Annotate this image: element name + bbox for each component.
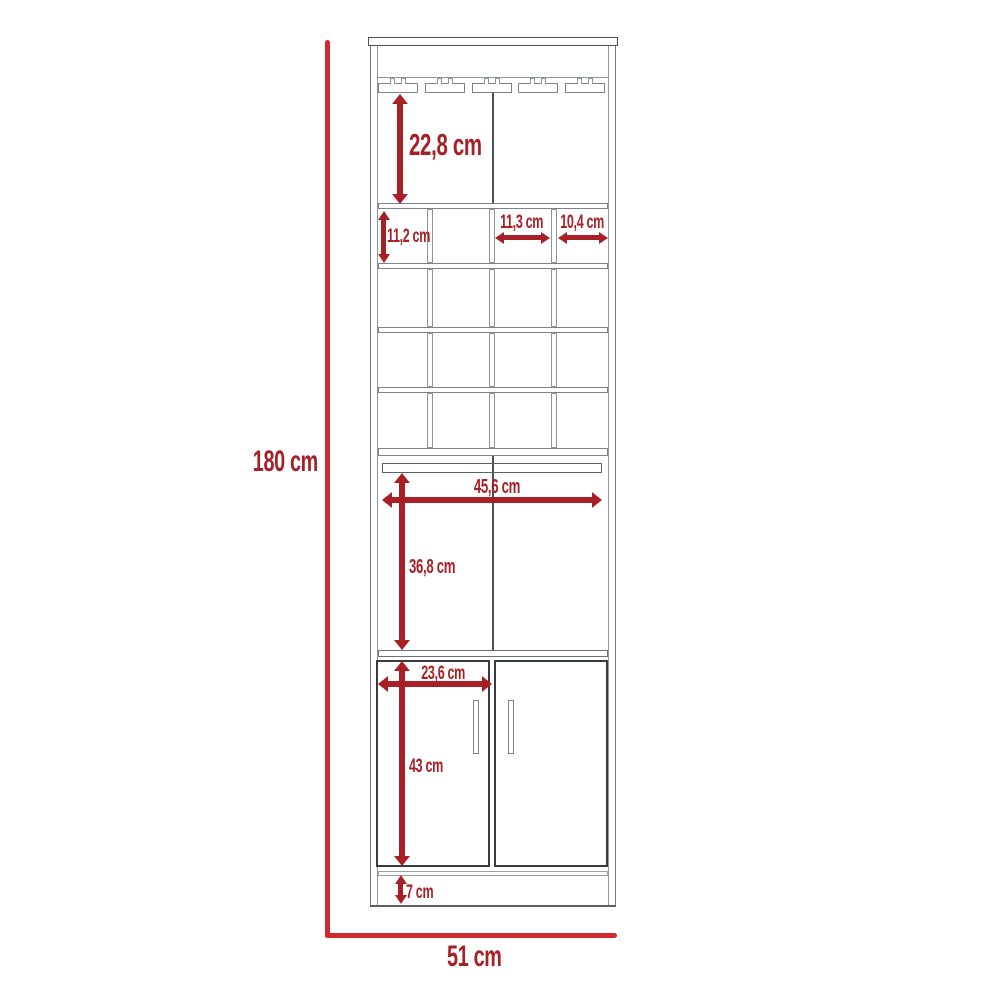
rail-tab (437, 78, 442, 84)
shelf-width-label: 45,6 cm (447, 477, 547, 497)
stemware-rail (518, 83, 558, 93)
wine-rack-divider (427, 393, 433, 448)
base-trim-line (378, 871, 608, 876)
rail-tab (541, 78, 546, 84)
rail-tab (588, 78, 593, 84)
rail-tab (448, 78, 453, 84)
wine-rack-divider (551, 393, 557, 448)
cabinet-bottom-edge (370, 905, 616, 908)
rail-tab (530, 78, 535, 84)
middle-shelf (378, 650, 608, 657)
base-height-arrow (398, 884, 403, 895)
rail-tab (390, 78, 395, 84)
stemware-rack-mount-line (378, 77, 608, 79)
overall-width-label: 51 cm (424, 942, 524, 972)
wine-rack-divider (551, 333, 557, 387)
cubby-height-arrow (381, 220, 386, 254)
middle-height-label: 36,8 cm (409, 557, 479, 577)
door-height-arrow (399, 671, 405, 856)
wine-rack-divider (427, 269, 433, 327)
rail-tab (495, 78, 500, 84)
stemware-rail (378, 83, 418, 93)
wine-rack-divider (427, 333, 433, 387)
cubby-outer-width-arrow (567, 235, 599, 240)
door-height-label: 43 cm (409, 757, 460, 776)
dimension-diagram: 180 cm 51 cm 22,8 cm 11,2 cm 11,3 cm 10,… (0, 0, 1000, 1000)
overall-height-dimension-line (325, 40, 330, 938)
stemware-rail (425, 83, 465, 93)
glass-height-label: 22,8 cm (409, 129, 519, 160)
door-width-label: 23,6 cm (393, 664, 493, 683)
stemware-rail (472, 83, 512, 93)
rail-tab (577, 78, 582, 84)
wine-rack-divider (489, 269, 495, 327)
wine-rack-shelf (378, 448, 608, 456)
right-side-panel (608, 46, 616, 907)
right-door-handle (508, 700, 514, 754)
rail-tab (484, 78, 489, 84)
wine-rack-divider (489, 393, 495, 448)
left-door-handle (473, 700, 479, 754)
stemware-rail (565, 83, 605, 93)
right-door (494, 660, 608, 867)
cubby-inner-width-arrow (504, 235, 541, 240)
base-height-label: 7 cm (406, 883, 447, 902)
cubby-height-label: 11,2 cm (387, 227, 452, 246)
bar-rail (382, 463, 602, 473)
overall-width-dimension-line (325, 933, 617, 938)
middle-height-arrow (399, 483, 405, 640)
overall-height-label: 180 cm (235, 447, 335, 477)
top-board (368, 37, 618, 46)
rail-tab (401, 78, 406, 84)
wine-rack-divider (551, 269, 557, 327)
glass-height-arrow (397, 104, 403, 194)
wine-rack-divider (489, 333, 495, 387)
cubby-outer-width-label: 10,4 cm (532, 213, 632, 232)
